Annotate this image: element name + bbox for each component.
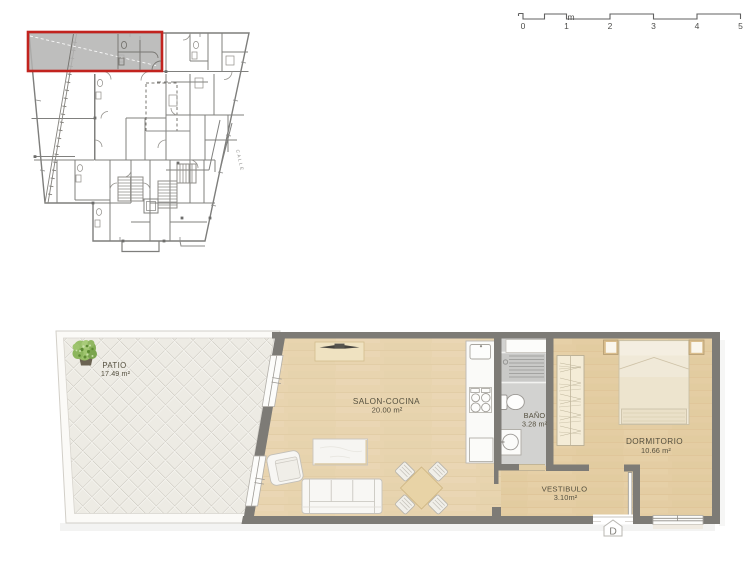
svg-text:m: m [567, 12, 574, 22]
svg-text:17.49 m²: 17.49 m² [101, 369, 131, 378]
svg-text:3: 3 [651, 21, 656, 31]
svg-text:0: 0 [521, 21, 526, 31]
svg-text:10.66 m²: 10.66 m² [641, 446, 671, 455]
svg-text:D: D [609, 526, 617, 538]
svg-text:3.28 m²: 3.28 m² [522, 420, 548, 429]
svg-text:3.10m²: 3.10m² [554, 493, 578, 502]
svg-text:4: 4 [695, 21, 700, 31]
svg-text:DORMITORIO: DORMITORIO [626, 437, 683, 446]
svg-text:20.00 m²: 20.00 m² [372, 406, 403, 415]
svg-text:5: 5 [738, 21, 743, 31]
svg-text:1: 1 [564, 21, 569, 31]
svg-text:2: 2 [608, 21, 613, 31]
